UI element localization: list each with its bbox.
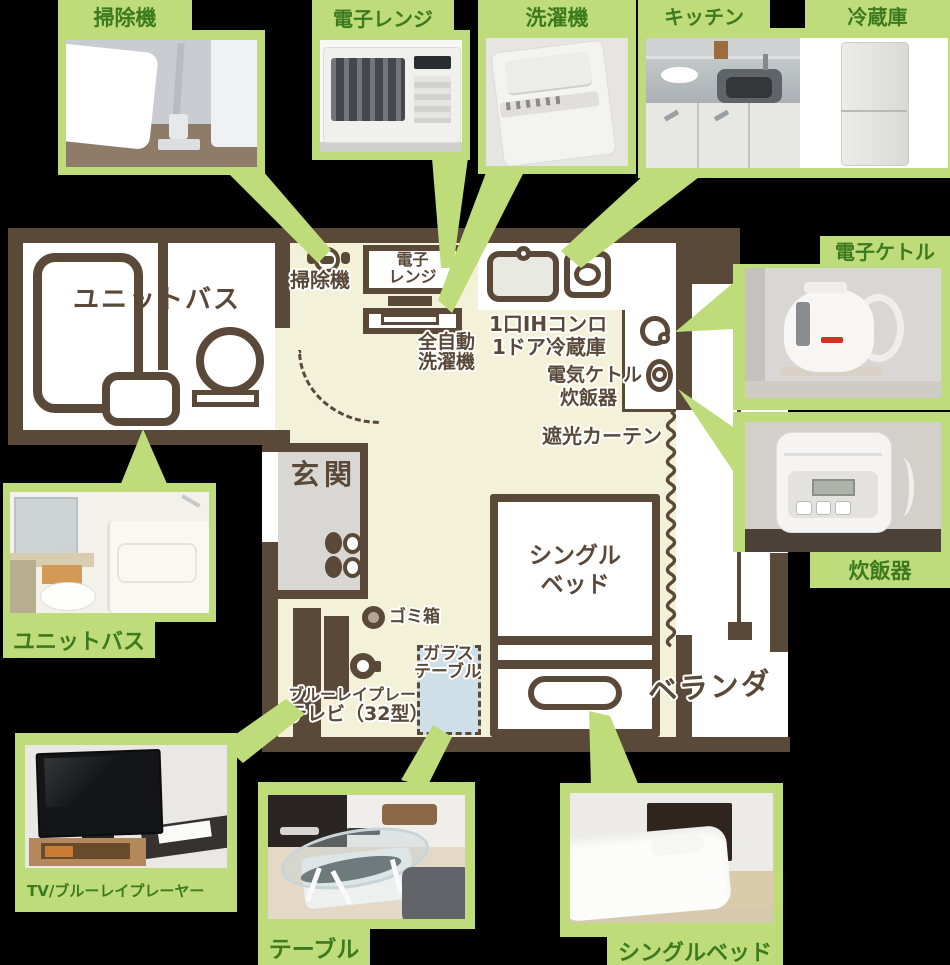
shoes-icon: [323, 530, 365, 580]
rice-cooker-card-label: 炊飯器: [810, 552, 950, 588]
label-microwave-2: レンジ: [369, 268, 456, 285]
faucet-icon: [516, 246, 531, 261]
fridge-photo: [800, 38, 948, 168]
table-card-label: テーブル: [258, 929, 370, 965]
wall-right-upper: [676, 243, 692, 410]
table-card: テーブル: [258, 782, 475, 965]
label-curtain: 遮光カーテン: [542, 426, 662, 448]
wall-entrance-top: [278, 443, 368, 452]
rice-cooker-icon-ring: [652, 367, 667, 382]
microwave-photo: [320, 40, 462, 152]
kitchen-card-label: キッチン: [638, 0, 770, 30]
toilet-base-icon: [192, 390, 259, 407]
tv-photo: [25, 745, 227, 868]
kitchen-fridge-card: キッチン 冷蔵庫: [638, 0, 950, 178]
microwave-stand: [388, 296, 432, 306]
unit-bath-photo: [10, 492, 209, 613]
wall-bath-divider: [275, 243, 290, 328]
toilet-icon: [196, 327, 264, 395]
balcony-door-handle: [728, 622, 752, 640]
microwave-box: 電子 レンジ: [363, 245, 462, 294]
fridge-card-label: 冷蔵庫: [805, 0, 950, 30]
bed-card-label: シングルベッド: [607, 937, 783, 965]
kettle-photo: [745, 268, 941, 398]
trash-icon: [362, 606, 385, 629]
tv-card: TV/ブルーレイプレーヤー: [15, 733, 237, 912]
label-bed-2: ベッド: [490, 573, 660, 598]
wall-entrance-bottom: [278, 590, 368, 599]
rice-cooker-photo: [745, 422, 941, 552]
label-entrance: 玄関: [291, 460, 357, 490]
unit-bath-card-label: ユニットバス: [3, 622, 155, 658]
microwave-card-label: 電子レンジ: [312, 0, 454, 34]
tv-card-label: TV/ブルーレイプレーヤー: [15, 873, 237, 907]
wall-bottom: [262, 737, 790, 752]
label-stove: 1口IHコンロ: [489, 314, 607, 336]
bed-frame-line-2: [490, 660, 660, 669]
label-washer-2: 洗濯機: [418, 352, 475, 373]
bed-card: シングルベッド: [560, 783, 783, 965]
label-vacuum: 掃除機: [290, 270, 350, 292]
wall-top: [8, 228, 700, 243]
label-fridge: 1ドア冷蔵庫: [492, 337, 606, 359]
bed-photo: [570, 793, 773, 923]
bath-sink-icon: [102, 372, 180, 426]
mug-handle-icon: [374, 661, 381, 672]
rice-cooker-card: 炊飯器: [733, 412, 950, 588]
table-photo: [268, 795, 465, 919]
unit-bath-card: ユニットバス: [3, 483, 216, 658]
label-tv: テレビ（32型）: [288, 704, 428, 725]
kettle-icon-knob: [658, 332, 670, 344]
apartment-floor-plan-diagram: ユニットバス 掃除機 電子 レンジ 全自動 洗濯機 1口IHコンロ 1ドア冷蔵庫…: [0, 0, 950, 965]
washer-card: 洗濯機: [478, 0, 636, 174]
vacuum-photo: [66, 40, 257, 167]
window-right: [676, 410, 692, 635]
washer-photo: [486, 38, 628, 166]
kitchen-photo: [646, 38, 800, 168]
entrance-door-gap: [262, 452, 278, 542]
kettle-card-label: 電子ケトル: [820, 236, 950, 264]
vacuum-icon-ear: [341, 252, 350, 264]
label-bed-1: シングル: [490, 544, 660, 569]
mug-icon: [350, 653, 376, 679]
burner-ring-icon: [574, 263, 601, 286]
label-microwave-1: 電子: [369, 251, 456, 268]
label-glass-table-2: テーブル: [414, 663, 481, 681]
vacuum-card: 掃除機: [58, 0, 265, 175]
vacuum-icon-bar: [320, 256, 334, 264]
label-kettle: 電気ケトル: [547, 365, 642, 386]
label-trash: ゴミ箱: [389, 608, 440, 626]
label-unit-bath: ユニットバス: [73, 286, 241, 314]
label-washer-1: 全自動: [418, 332, 475, 353]
wall-left: [8, 243, 23, 445]
washer-slot: [381, 314, 439, 325]
microwave-card: 電子レンジ: [312, 0, 470, 160]
vacuum-card-label: 掃除機: [58, 0, 192, 34]
label-glass-table-1: ガラス: [423, 645, 474, 663]
wall-bath-bottom: [8, 430, 290, 445]
label-rice-cooker: 炊飯器: [560, 388, 617, 409]
bed-frame-line-1: [490, 636, 660, 645]
pillow-icon: [528, 676, 622, 710]
washer-card-label: 洗濯機: [478, 0, 636, 33]
